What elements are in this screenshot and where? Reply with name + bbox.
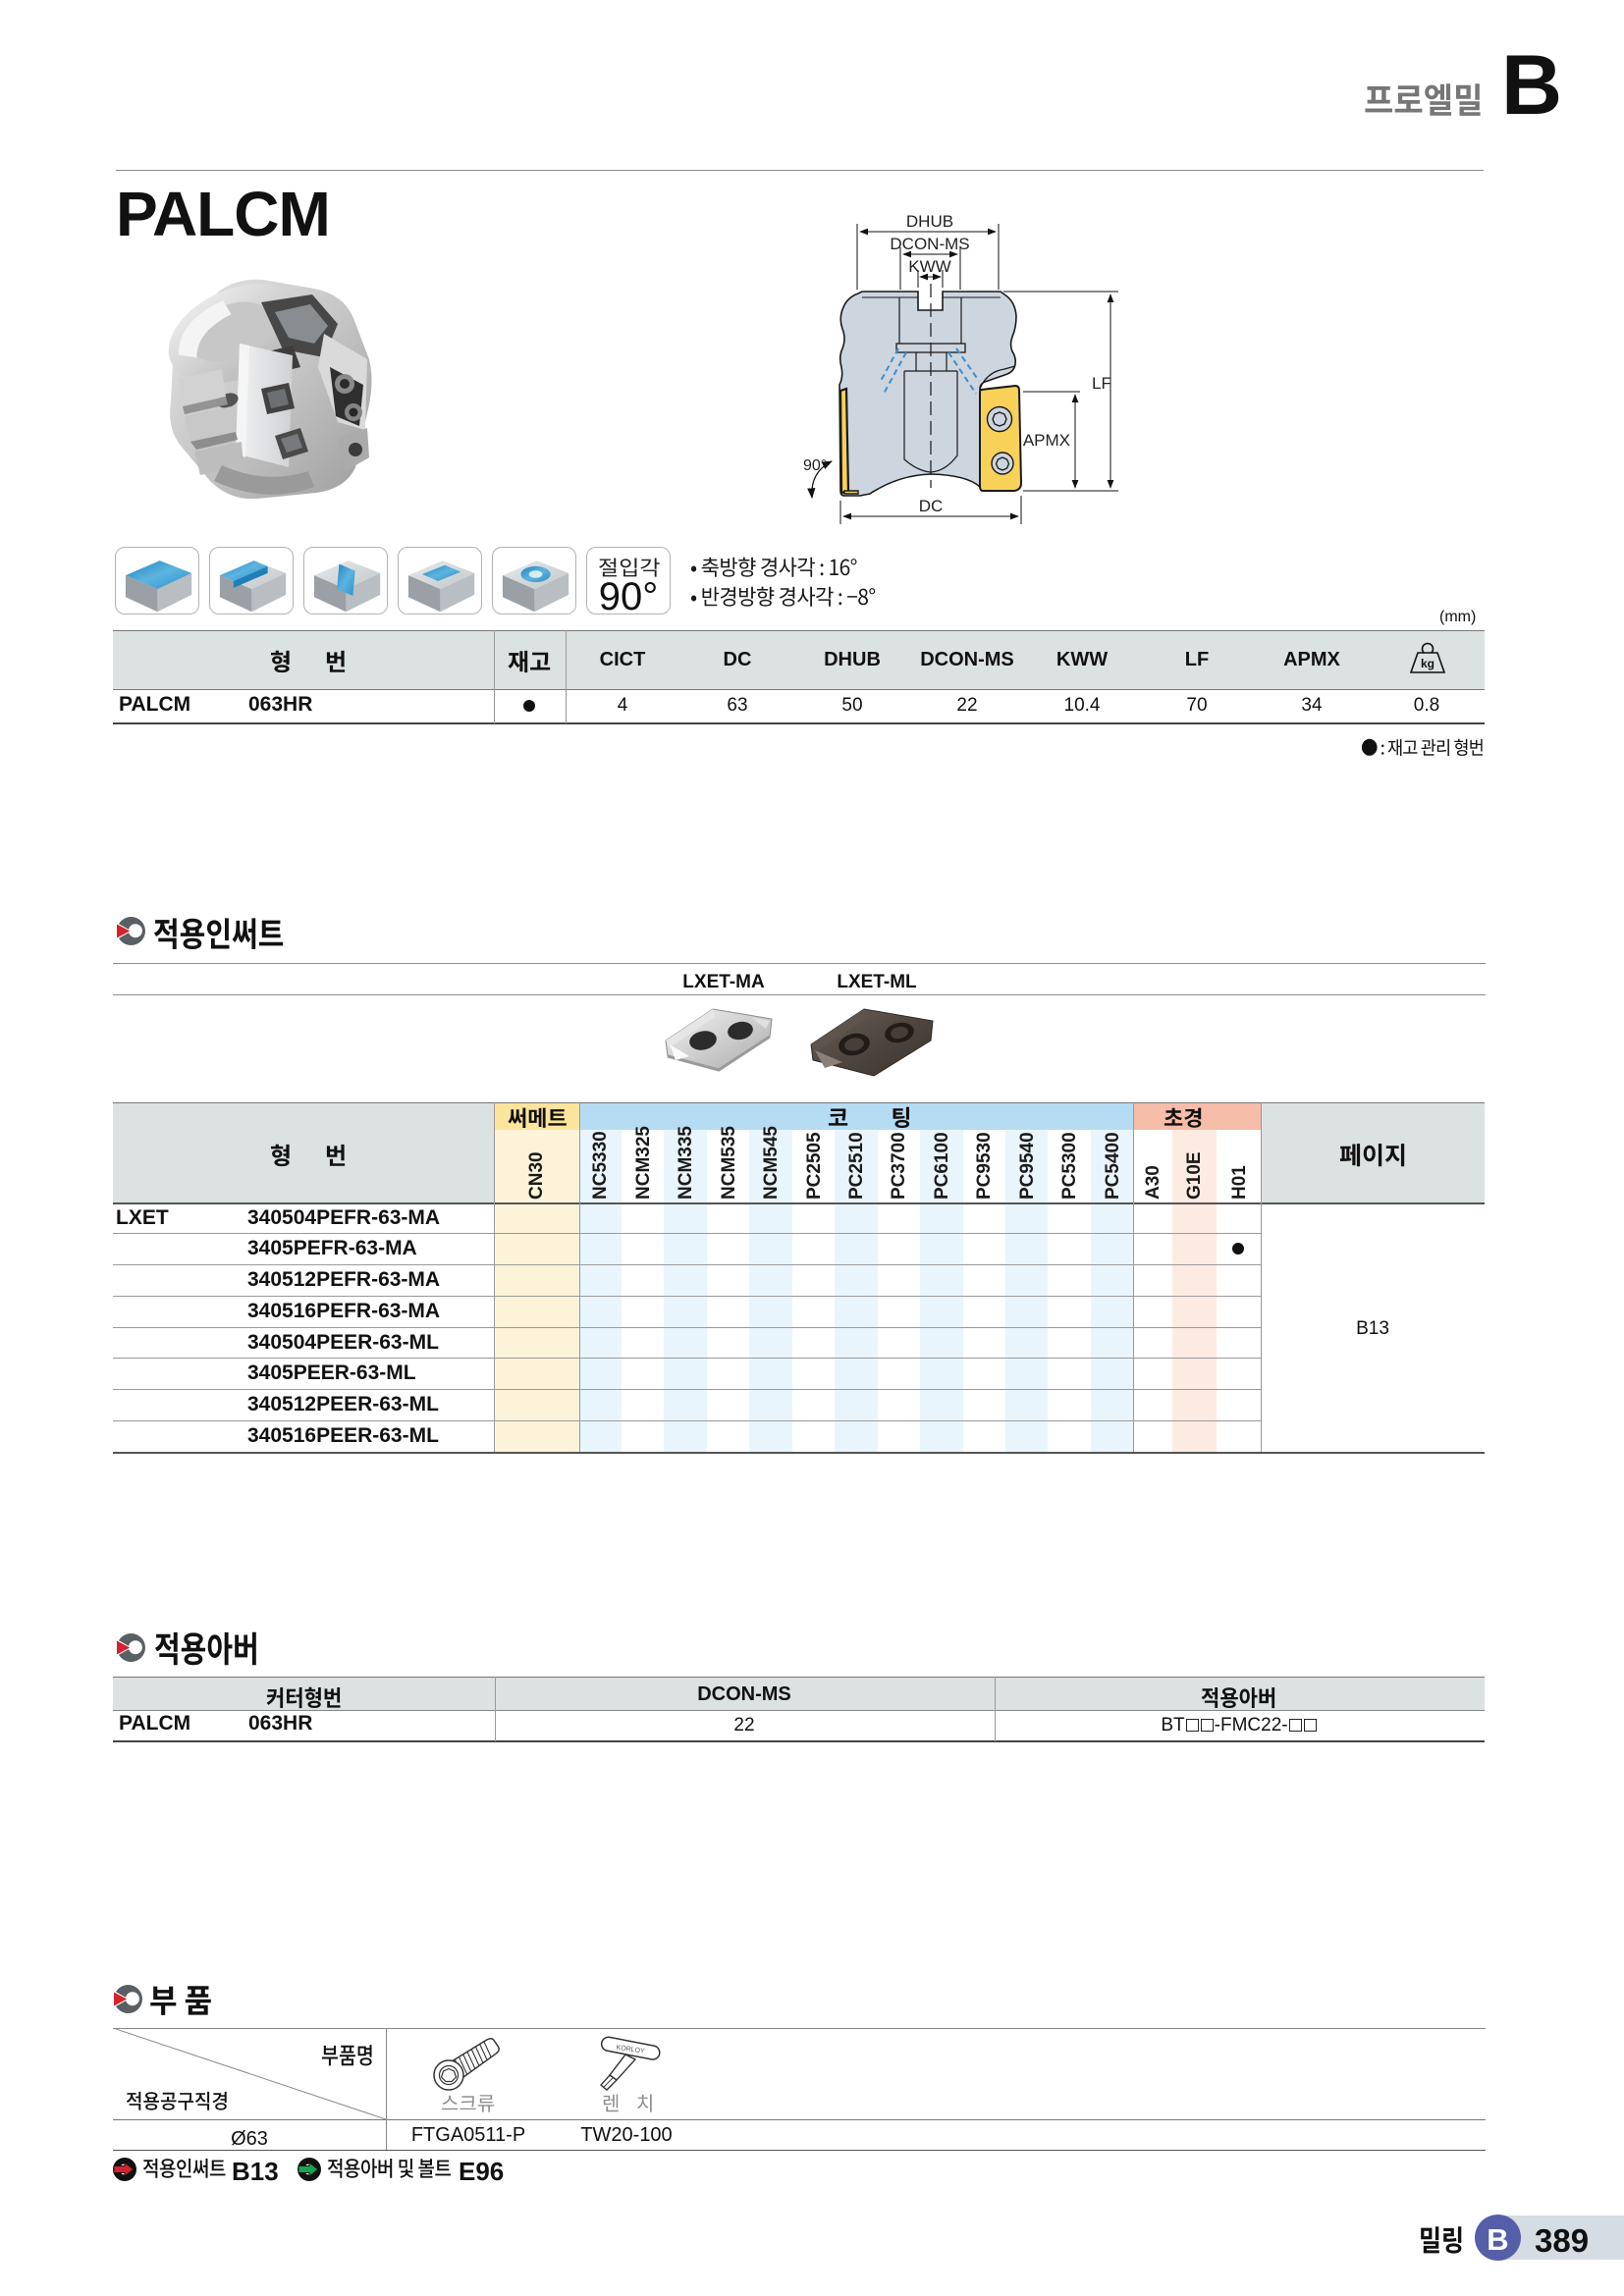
svg-text:DHUB: DHUB <box>906 212 953 231</box>
svg-text:kg: kg <box>1421 657 1435 670</box>
svg-text:PC5400: PC5400 <box>1103 1132 1123 1200</box>
svg-text:DCON-MS: DCON-MS <box>890 235 969 253</box>
svg-text:PC9540: PC9540 <box>1017 1132 1038 1200</box>
svg-text:KWW: KWW <box>908 257 950 276</box>
svg-text:90°: 90° <box>803 457 827 474</box>
svg-text:DC: DC <box>919 497 944 515</box>
svg-text:NCM545: NCM545 <box>761 1126 782 1200</box>
svg-text:PC5300: PC5300 <box>1059 1132 1080 1200</box>
svg-text:NC5330: NC5330 <box>590 1131 611 1200</box>
svg-text:H01: H01 <box>1229 1165 1250 1200</box>
svg-text:PC3700: PC3700 <box>889 1132 909 1200</box>
svg-text:NCM535: NCM535 <box>719 1126 739 1200</box>
svg-text:NCM325: NCM325 <box>633 1126 654 1200</box>
svg-text:CN30: CN30 <box>526 1151 547 1200</box>
svg-text:G10E: G10E <box>1184 1151 1205 1200</box>
svg-text:PC2505: PC2505 <box>804 1132 825 1200</box>
svg-text:PC2510: PC2510 <box>846 1132 867 1200</box>
svg-text:LF: LF <box>1092 374 1111 393</box>
svg-text:PC9530: PC9530 <box>974 1132 995 1200</box>
svg-text:NCM335: NCM335 <box>676 1126 696 1200</box>
svg-text:PC6100: PC6100 <box>932 1132 952 1200</box>
svg-text:APMX: APMX <box>1023 431 1070 450</box>
svg-text:A30: A30 <box>1143 1165 1164 1200</box>
